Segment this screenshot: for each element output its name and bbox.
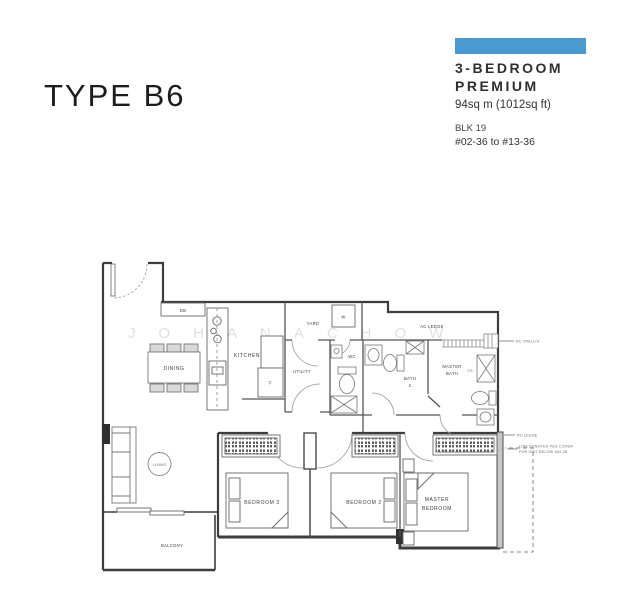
master-bath-fixtures — [442, 340, 496, 425]
bath2-label-line1: BATH — [404, 376, 416, 381]
ac-ledge-label: AC LEDGE — [420, 324, 444, 329]
balcony-sliding-door — [117, 508, 184, 515]
washer-label: W — [341, 315, 345, 320]
bath2-label-line2: 2 — [409, 383, 412, 388]
pes-note-line2: FOR UNIT BELOW #02-36 — [519, 450, 567, 454]
rc-trellis-label: RC TRELLIS — [516, 340, 540, 344]
yard-label: YARD — [307, 321, 320, 326]
structural-column-left — [102, 424, 110, 444]
fridge-and-cabinet — [258, 336, 283, 397]
kitchen-label: KITCHEN — [234, 353, 260, 359]
master-right-wall — [497, 432, 503, 548]
bedroom3-label: BEDROOM 3 — [244, 500, 279, 506]
bedroom-divider-wall-stub — [304, 433, 316, 469]
cs-label: CS — [467, 369, 473, 373]
rc-ledge-label: RC LEDGE — [517, 434, 538, 438]
dining-label: DINING — [163, 366, 184, 372]
master-bedroom-furniture — [403, 435, 497, 545]
bedroom2-label: BEDROOM 2 — [346, 500, 381, 506]
utility-label: UTILITY — [293, 369, 311, 374]
bedroom2-furniture — [331, 435, 398, 528]
sofa — [112, 427, 136, 503]
bath2-fixtures — [365, 341, 424, 372]
pes-note-line1: LINE DENOTES PES COVER — [519, 445, 573, 449]
master-bath-label-line1: MASTER — [442, 364, 461, 369]
balcony-label: BALCONY — [161, 543, 183, 548]
master-bedroom-label-line1: MASTER — [425, 497, 449, 503]
wc-label: WC — [348, 354, 356, 359]
master-bath-label-line2: BATH — [446, 371, 458, 376]
master-bedroom-label-line2: BEDROOM — [422, 506, 452, 512]
db-label: DB — [180, 308, 186, 313]
kitchen-counter — [207, 308, 228, 410]
fridge-label: F — [269, 381, 272, 386]
bedroom3-furniture — [222, 435, 288, 528]
pes-cover-dashed-line — [503, 448, 533, 552]
floor-plan-page: TYPE B6 3-BEDROOM PREMIUM 94sq m (1012sq… — [0, 0, 627, 600]
floor-plan-svg: JOHANACHOW — [0, 0, 627, 600]
living-label: LIVING — [153, 463, 166, 467]
